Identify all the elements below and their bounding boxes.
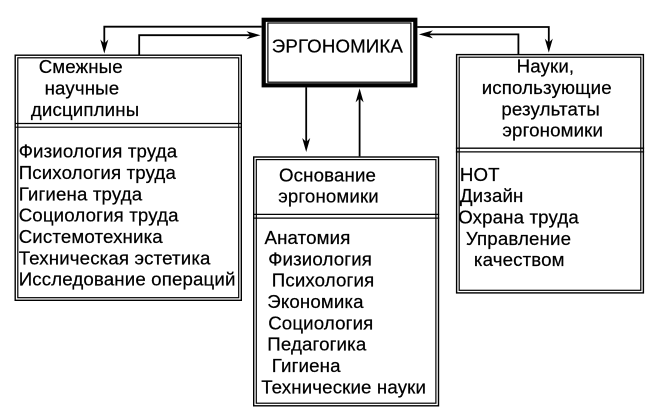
svg-text:Физиология: Физиология bbox=[268, 248, 372, 269]
svg-text:Социология: Социология bbox=[268, 312, 373, 333]
svg-text:Анатомия: Анатомия bbox=[265, 227, 351, 248]
svg-text:Гигиена труда: Гигиена труда bbox=[19, 183, 143, 204]
svg-text:Педагогика: Педагогика bbox=[267, 334, 367, 355]
svg-text:Дизайн: Дизайн bbox=[460, 185, 524, 206]
svg-text:Технические науки: Технические науки bbox=[261, 376, 426, 397]
svg-text:ЭРГОНОМИКА: ЭРГОНОМИКА bbox=[272, 35, 404, 56]
svg-text:Основание: Основание bbox=[279, 164, 376, 185]
svg-text:НОТ: НОТ bbox=[460, 164, 500, 185]
svg-text:Техническая эстетика: Техническая эстетика bbox=[19, 247, 211, 268]
svg-text:Психология: Психология bbox=[272, 270, 375, 291]
svg-text:Психология труда: Психология труда bbox=[19, 162, 177, 183]
svg-text:научные: научные bbox=[45, 78, 120, 99]
svg-text:Науки,: Науки, bbox=[517, 56, 575, 77]
svg-text:Исследование операций: Исследование операций bbox=[19, 269, 236, 290]
svg-text:эргономики: эргономики bbox=[502, 120, 603, 141]
svg-text:Системотехника: Системотехника bbox=[19, 226, 164, 247]
svg-text:Гигиена: Гигиена bbox=[272, 355, 341, 376]
svg-text:дисциплины: дисциплины bbox=[31, 99, 139, 120]
svg-text:использующие: использующие bbox=[482, 77, 612, 98]
svg-text:Экономика: Экономика bbox=[267, 291, 364, 312]
svg-text:Социология труда: Социология труда bbox=[19, 205, 179, 226]
svg-text:Смежные: Смежные bbox=[39, 56, 123, 77]
svg-text:Физиология труда: Физиология труда bbox=[19, 141, 178, 162]
svg-text:Управление: Управление bbox=[466, 228, 571, 249]
svg-text:Охрана труда: Охрана труда bbox=[458, 207, 579, 228]
svg-text:эргономики: эргономики bbox=[278, 186, 379, 207]
svg-text:результаты: результаты bbox=[501, 98, 600, 119]
svg-text:качеством: качеством bbox=[474, 249, 565, 270]
